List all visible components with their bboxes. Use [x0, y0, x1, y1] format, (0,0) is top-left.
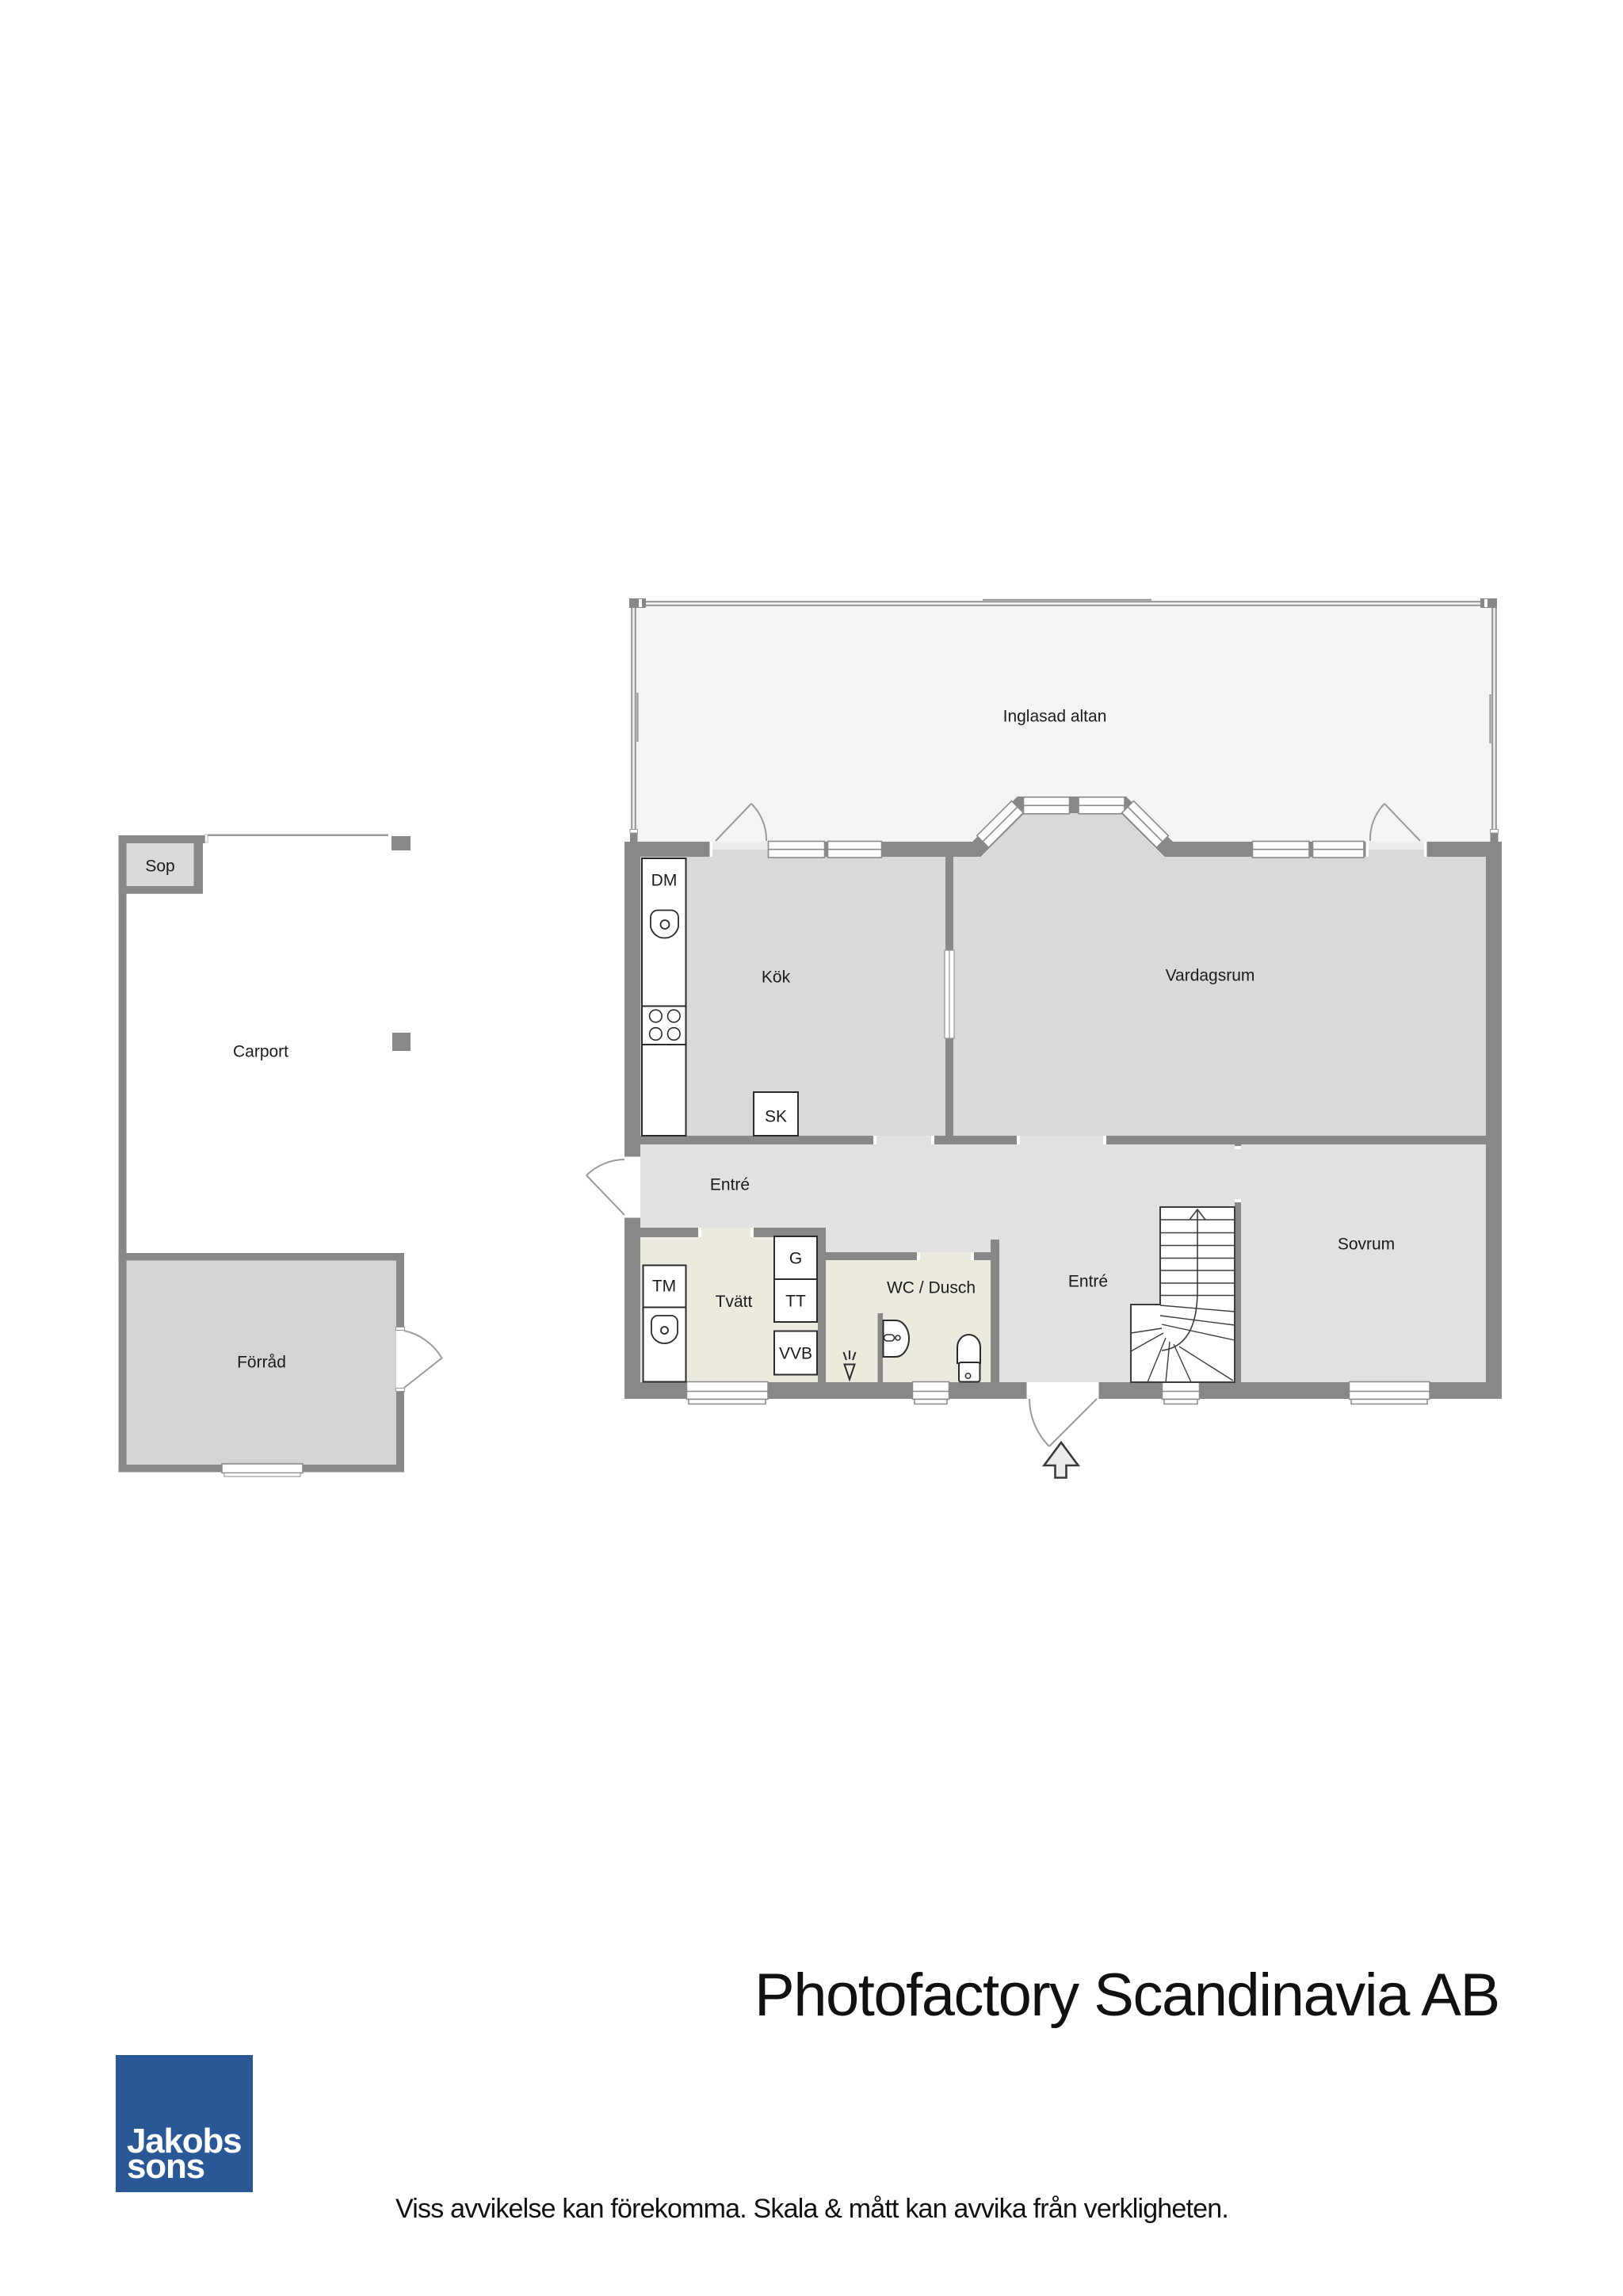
svg-text:Photofactory Scandinavia AB: Photofactory Scandinavia AB: [754, 1962, 1499, 2029]
svg-text:VVB: VVB: [779, 1345, 812, 1363]
svg-text:WC / Dusch: WC / Dusch: [887, 1279, 976, 1297]
svg-text:Förråd: Förråd: [237, 1354, 286, 1372]
svg-text:Carport: Carport: [233, 1043, 288, 1061]
svg-text:sons: sons: [127, 2147, 204, 2186]
svg-text:Entré: Entré: [710, 1176, 750, 1194]
svg-text:Tvätt: Tvätt: [716, 1293, 753, 1311]
svg-text:Sop: Sop: [145, 858, 174, 876]
svg-text:G: G: [789, 1250, 802, 1268]
svg-text:Inglasad altan: Inglasad altan: [1003, 708, 1107, 726]
svg-text:Entré: Entré: [1068, 1273, 1108, 1291]
svg-text:DM: DM: [651, 872, 678, 890]
svg-text:TT: TT: [785, 1293, 806, 1311]
svg-text:Vardagsrum: Vardagsrum: [1166, 967, 1255, 985]
svg-text:Viss avvikelse kan förekomma.: Viss avvikelse kan förekomma. Skala & må…: [395, 2194, 1228, 2224]
svg-text:Kök: Kök: [762, 968, 791, 987]
svg-text:SK: SK: [765, 1108, 787, 1126]
svg-text:TM: TM: [652, 1278, 676, 1296]
svg-text:Sovrum: Sovrum: [1338, 1236, 1395, 1254]
